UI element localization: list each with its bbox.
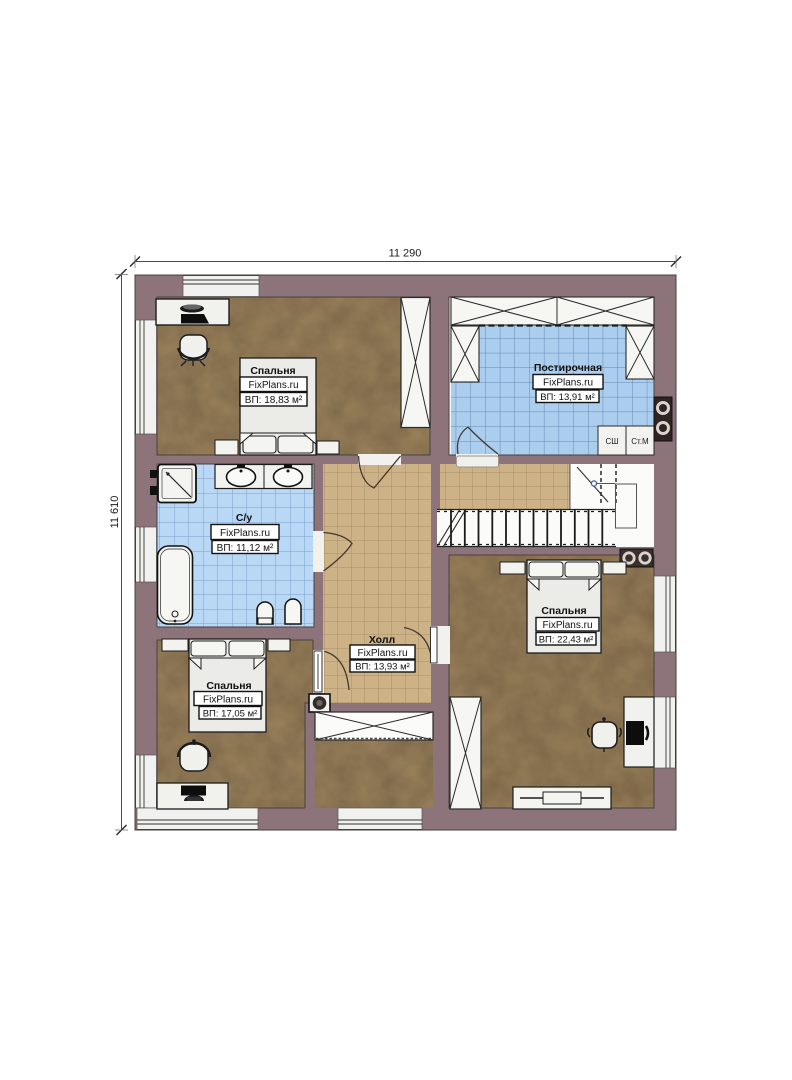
svg-text:ВП: 13,91 м²: ВП: 13,91 м² xyxy=(540,392,595,403)
svg-text:FixPlans.ru: FixPlans.ru xyxy=(542,620,592,631)
svg-text:FixPlans.ru: FixPlans.ru xyxy=(220,528,270,539)
svg-text:FixPlans.ru: FixPlans.ru xyxy=(248,380,298,391)
svg-text:ВП: 17,05 м²: ВП: 17,05 м² xyxy=(203,709,258,720)
svg-text:Спальня: Спальня xyxy=(250,365,295,377)
svg-text:Спальня: Спальня xyxy=(206,680,251,692)
svg-text:11 290: 11 290 xyxy=(389,248,422,260)
svg-text:11 610: 11 610 xyxy=(109,496,121,529)
svg-text:Ст.М: Ст.М xyxy=(631,437,649,446)
svg-text:ВП: 22,43 м²: ВП: 22,43 м² xyxy=(539,635,594,646)
svg-text:ВП: 18,83 м²: ВП: 18,83 м² xyxy=(245,395,303,406)
svg-text:FixPlans.ru: FixPlans.ru xyxy=(543,378,593,389)
svg-text:FixPlans.ru: FixPlans.ru xyxy=(357,648,407,659)
svg-text:ВП: 13,93 м²: ВП: 13,93 м² xyxy=(355,662,410,673)
svg-text:Холл: Холл xyxy=(369,634,395,646)
svg-text:Спальня: Спальня xyxy=(541,605,586,617)
svg-text:FixPlans.ru: FixPlans.ru xyxy=(203,695,253,706)
svg-text:СШ: СШ xyxy=(605,437,618,446)
svg-text:Постирочная: Постирочная xyxy=(534,362,602,374)
svg-text:ВП: 11,12 м²: ВП: 11,12 м² xyxy=(217,543,274,554)
svg-text:С/у: С/у xyxy=(236,512,253,524)
